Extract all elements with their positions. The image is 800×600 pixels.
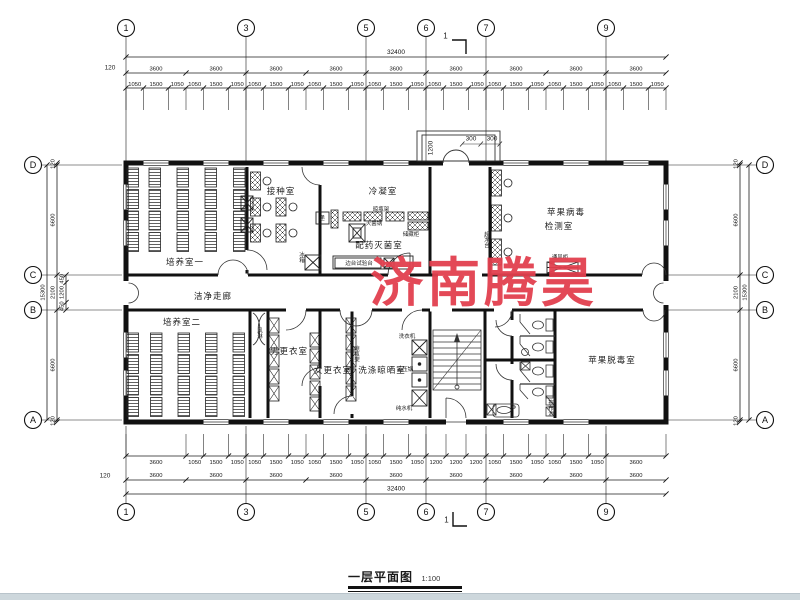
svg-text:1050: 1050 [548, 82, 561, 88]
svg-text:5: 5 [363, 23, 368, 33]
room-label-virus-line1: 苹果病毒 [547, 206, 585, 218]
toilet-fixtures [487, 314, 555, 417]
equip-label-autoclave: 高压锅 [397, 365, 414, 373]
title-underline-thick [348, 586, 462, 589]
svg-text:1050: 1050 [351, 82, 364, 88]
svg-text:3: 3 [243, 507, 248, 517]
svg-text:1: 1 [123, 23, 128, 33]
dim-offset-top: 120 [105, 65, 116, 72]
room-label-men-change: 男更衣室 [270, 345, 308, 357]
stairs [433, 330, 481, 390]
svg-text:1050: 1050 [231, 460, 244, 466]
svg-text:1050: 1050 [368, 460, 381, 466]
svg-text:3600: 3600 [510, 67, 523, 73]
svg-text:B: B [30, 305, 36, 315]
svg-text:1500: 1500 [630, 82, 643, 88]
svg-text:1050: 1050 [428, 82, 441, 88]
dim-porch-depth: 1200 [428, 141, 435, 155]
svg-text:1500: 1500 [570, 460, 583, 466]
svg-text:3600: 3600 [330, 67, 343, 73]
svg-text:1500: 1500 [570, 82, 583, 88]
svg-text:1050: 1050 [291, 460, 304, 466]
svg-text:1050: 1050 [128, 82, 141, 88]
svg-text:1500: 1500 [270, 82, 283, 88]
svg-text:1: 1 [123, 507, 128, 517]
svg-text:1050: 1050 [308, 82, 321, 88]
svg-text:1200: 1200 [60, 286, 66, 299]
equip-label-clean-bench: 超净台 [482, 232, 490, 249]
svg-text:3600: 3600 [630, 67, 643, 73]
svg-text:7: 7 [483, 507, 488, 517]
equip-label-washer: 洗衣机 [399, 332, 416, 340]
svg-text:3600: 3600 [330, 473, 343, 479]
room-label-corridor: 洁净走廊 [194, 290, 232, 302]
scan-edge-strip [0, 593, 800, 600]
svg-text:1050: 1050 [488, 460, 501, 466]
svg-text:120: 120 [51, 416, 57, 426]
svg-text:D: D [762, 160, 769, 170]
svg-text:C: C [762, 270, 769, 280]
room-label-condensation: 冷凝室 [369, 185, 398, 197]
equip-label-sterilizer: 灭菌锅 [366, 219, 383, 227]
svg-text:1050: 1050 [368, 82, 381, 88]
svg-text:A: A [30, 415, 36, 425]
svg-text:1200: 1200 [450, 460, 463, 466]
dim-porch-step-right: 300 [487, 136, 498, 143]
svg-text:3600: 3600 [450, 473, 463, 479]
svg-text:32400: 32400 [387, 486, 405, 493]
equip-label-bottle-rack-top: 晾瓶架 [373, 205, 390, 213]
svg-text:1050: 1050 [188, 82, 201, 88]
svg-text:1500: 1500 [210, 82, 223, 88]
drawing-title: 一层平面图 [348, 568, 413, 585]
svg-text:1500: 1500 [150, 82, 163, 88]
svg-text:3600: 3600 [270, 473, 283, 479]
svg-text:3600: 3600 [150, 473, 163, 479]
svg-text:1050: 1050 [291, 82, 304, 88]
dim-offset-bottom: 120 [100, 473, 111, 480]
svg-text:1050: 1050 [171, 82, 184, 88]
floor-plan-sheet: 1050150010501050150010501050150010501050… [0, 0, 800, 600]
svg-text:1050: 1050 [608, 82, 621, 88]
svg-text:3600: 3600 [210, 67, 223, 73]
equip-label-bottle-rack-bottom: 晾瓶架 [352, 346, 360, 363]
svg-text:1050: 1050 [591, 460, 604, 466]
equip-label-air-shower: 风淋 [255, 328, 263, 339]
svg-text:1200: 1200 [430, 460, 443, 466]
svg-text:450: 450 [60, 274, 66, 284]
svg-text:6600: 6600 [51, 359, 57, 372]
section-marker-bottom-label: 1 [444, 516, 449, 525]
svg-text:1050: 1050 [591, 82, 604, 88]
svg-text:1500: 1500 [390, 460, 403, 466]
svg-text:C: C [30, 270, 37, 280]
svg-text:15300: 15300 [41, 284, 47, 300]
svg-text:6: 6 [423, 23, 428, 33]
equip-label-mop-sink: 拖布池 [546, 400, 554, 417]
equip-label-cabinet: 储藏柜 [403, 230, 420, 238]
svg-text:1050: 1050 [308, 460, 321, 466]
svg-text:3600: 3600 [630, 473, 643, 479]
svg-text:15300: 15300 [743, 284, 749, 300]
svg-text:7: 7 [483, 23, 488, 33]
svg-text:3600: 3600 [510, 473, 523, 479]
svg-text:3600: 3600 [570, 473, 583, 479]
equip-label-pass-window: 递 [319, 214, 325, 222]
svg-text:1050: 1050 [548, 460, 561, 466]
room-label-detox: 苹果脱毒室 [588, 354, 636, 366]
svg-text:1050: 1050 [471, 82, 484, 88]
svg-text:3600: 3600 [150, 460, 163, 466]
svg-text:9: 9 [603, 23, 608, 33]
svg-text:450: 450 [60, 301, 66, 311]
svg-text:1050: 1050 [531, 82, 544, 88]
svg-text:3600: 3600 [570, 67, 583, 73]
svg-text:1500: 1500 [390, 82, 403, 88]
svg-text:1500: 1500 [330, 82, 343, 88]
svg-text:1500: 1500 [510, 460, 523, 466]
equip-label-water-purifier: 纯水机 [396, 404, 413, 412]
svg-text:3600: 3600 [390, 67, 403, 73]
svg-text:32400: 32400 [387, 49, 405, 56]
svg-text:3600: 3600 [390, 473, 403, 479]
svg-text:3: 3 [243, 23, 248, 33]
svg-text:1500: 1500 [270, 460, 283, 466]
svg-text:3600: 3600 [270, 67, 283, 73]
svg-text:120: 120 [734, 159, 740, 169]
svg-text:1050: 1050 [248, 460, 261, 466]
title-block: 一层平面图 1:100 [348, 568, 468, 586]
room-label-virus-line2: 检测室 [545, 220, 574, 232]
svg-text:1050: 1050 [351, 460, 364, 466]
equip-label-side-bench: 边台试验台 [345, 259, 373, 267]
svg-text:120: 120 [51, 159, 57, 169]
svg-text:1500: 1500 [330, 460, 343, 466]
svg-text:9: 9 [603, 507, 608, 517]
svg-text:B: B [762, 305, 768, 315]
room-label-women-change: 女更衣室 [314, 364, 352, 376]
section-marker-top-label: 1 [443, 32, 448, 41]
svg-text:2100: 2100 [51, 286, 57, 299]
svg-text:1050: 1050 [411, 460, 424, 466]
svg-text:1050: 1050 [411, 82, 424, 88]
svg-text:6600: 6600 [51, 214, 57, 227]
svg-text:3600: 3600 [210, 473, 223, 479]
svg-text:1050: 1050 [488, 82, 501, 88]
svg-text:1500: 1500 [210, 460, 223, 466]
equip-label-fridge: 冰箱 [297, 252, 305, 263]
room-label-prep: 配药灭菌室 [355, 239, 403, 251]
svg-text:3600: 3600 [630, 460, 643, 466]
watermark: 济南腾昊 [370, 255, 598, 313]
svg-text:D: D [30, 160, 37, 170]
svg-text:3600: 3600 [450, 67, 463, 73]
dim-porch-step-left: 300 [466, 136, 477, 143]
svg-text:1500: 1500 [450, 82, 463, 88]
svg-text:1200: 1200 [470, 460, 483, 466]
svg-text:1050: 1050 [231, 82, 244, 88]
svg-text:2100: 2100 [734, 286, 740, 299]
room-label-inoculation: 接种室 [267, 185, 296, 197]
svg-text:3600: 3600 [150, 67, 163, 73]
svg-text:120: 120 [734, 416, 740, 426]
svg-text:1050: 1050 [248, 82, 261, 88]
svg-text:5: 5 [363, 507, 368, 517]
svg-text:A: A [762, 415, 768, 425]
room-label-culture2: 培养室二 [163, 316, 201, 328]
svg-text:1050: 1050 [188, 460, 201, 466]
drawing-scale: 1:100 [421, 574, 440, 583]
svg-text:1050: 1050 [531, 460, 544, 466]
svg-text:1500: 1500 [510, 82, 523, 88]
svg-text:6600: 6600 [734, 359, 740, 372]
svg-text:1050: 1050 [651, 82, 664, 88]
svg-text:6600: 6600 [734, 214, 740, 227]
svg-text:6: 6 [423, 507, 428, 517]
room-label-culture1: 培养室一 [166, 256, 204, 268]
title-underline-thin [348, 591, 462, 592]
